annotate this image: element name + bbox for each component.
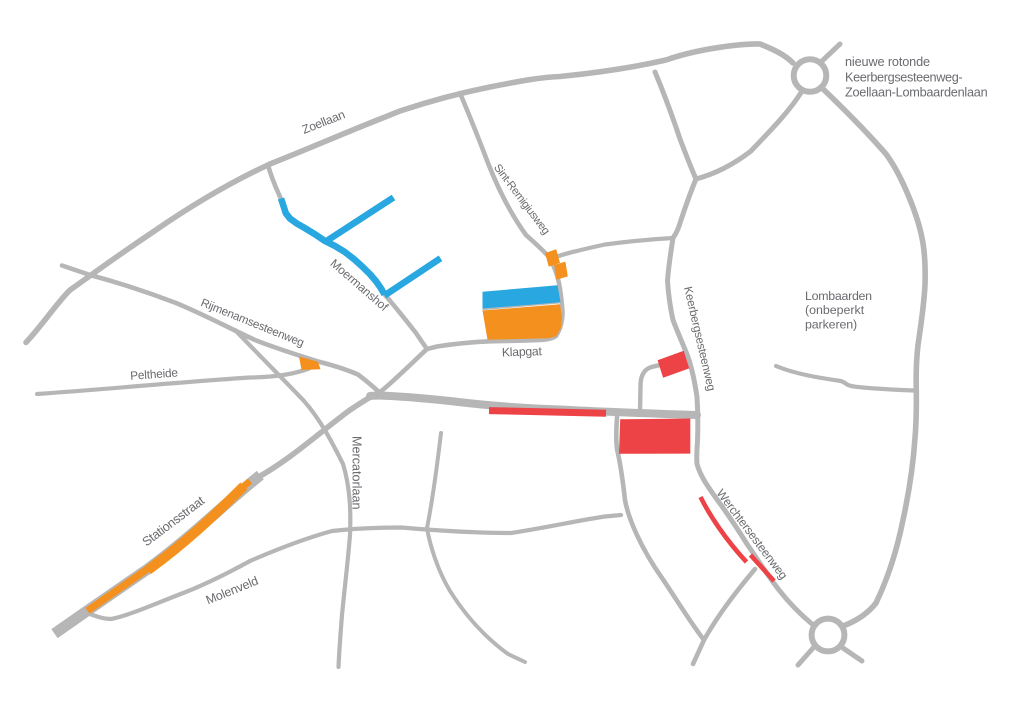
svg-text:Mercatorlaan: Mercatorlaan [350, 436, 364, 510]
svg-text:parkeren): parkeren) [805, 317, 857, 331]
svg-text:Keerbergsesteenweg-: Keerbergsesteenweg- [845, 70, 962, 84]
svg-text:Lombaarden: Lombaarden [805, 289, 872, 303]
svg-text:Zoellaan-Lombaardenlaan: Zoellaan-Lombaardenlaan [845, 86, 988, 100]
svg-text:(onbeperkt: (onbeperkt [805, 303, 865, 317]
svg-text:Klapgat: Klapgat [502, 344, 543, 359]
svg-text:nieuwe rotonde: nieuwe rotonde [845, 55, 930, 69]
